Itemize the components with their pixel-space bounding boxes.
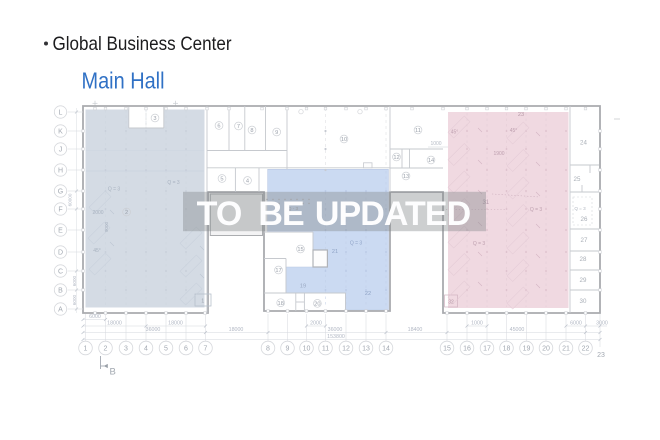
svg-text:60000: 60000 xyxy=(68,193,73,206)
svg-text:1000: 1000 xyxy=(430,141,441,147)
svg-text:21: 21 xyxy=(332,249,338,255)
svg-text:19: 19 xyxy=(300,284,306,290)
svg-text:36000: 36000 xyxy=(328,327,343,333)
svg-text:1: 1 xyxy=(201,299,204,305)
svg-text:28: 28 xyxy=(580,256,587,263)
svg-text:6: 6 xyxy=(184,346,188,353)
svg-text:23: 23 xyxy=(597,352,605,359)
svg-text:3: 3 xyxy=(153,116,156,122)
svg-text:F: F xyxy=(58,207,62,214)
svg-text:10: 10 xyxy=(303,346,311,353)
svg-text:4: 4 xyxy=(144,346,148,353)
svg-text:Q = 3: Q = 3 xyxy=(530,207,543,213)
svg-text:21: 21 xyxy=(562,346,570,353)
svg-text:Q = 3: Q = 3 xyxy=(473,241,486,247)
svg-text:45000: 45000 xyxy=(510,327,525,333)
svg-text:14: 14 xyxy=(428,158,434,164)
svg-text:H: H xyxy=(58,168,63,175)
svg-text:45°: 45° xyxy=(451,130,459,136)
svg-text:22: 22 xyxy=(582,346,590,353)
svg-text:17: 17 xyxy=(275,268,281,274)
svg-text:2: 2 xyxy=(104,346,108,353)
svg-text:6: 6 xyxy=(217,124,220,130)
svg-text:18400: 18400 xyxy=(408,327,423,333)
svg-text:4: 4 xyxy=(246,179,249,185)
svg-text:3: 3 xyxy=(124,346,128,353)
svg-text:K: K xyxy=(58,129,63,136)
svg-text:6000: 6000 xyxy=(72,275,77,286)
svg-text:20: 20 xyxy=(314,302,320,308)
svg-text:30: 30 xyxy=(580,298,587,305)
svg-text:J: J xyxy=(59,147,63,154)
svg-text:1000: 1000 xyxy=(471,321,483,327)
svg-text:14: 14 xyxy=(382,346,390,353)
svg-text:13: 13 xyxy=(403,174,409,180)
svg-text:B: B xyxy=(58,288,63,295)
svg-text:18: 18 xyxy=(278,301,284,307)
svg-text:9000: 9000 xyxy=(104,221,109,232)
svg-text:2: 2 xyxy=(125,210,128,216)
svg-text:Q = 3: Q = 3 xyxy=(574,206,586,211)
svg-text:1900: 1900 xyxy=(493,151,504,157)
svg-text:18000: 18000 xyxy=(168,321,183,327)
svg-text:A: A xyxy=(58,307,63,314)
svg-text:6000: 6000 xyxy=(89,314,101,320)
svg-text:1: 1 xyxy=(84,346,88,353)
svg-text:5: 5 xyxy=(220,177,223,183)
svg-text:B: B xyxy=(110,367,116,378)
svg-text:Main Hall: Main Hall xyxy=(82,68,165,94)
svg-text:22: 22 xyxy=(365,291,371,297)
svg-text:2000: 2000 xyxy=(310,321,322,327)
svg-text:15: 15 xyxy=(297,247,303,253)
svg-text:32: 32 xyxy=(448,300,454,306)
svg-text:Global Business Center: Global Business Center xyxy=(53,33,232,55)
svg-text:TO BE UPDATED: TO BE UPDATED xyxy=(197,195,471,233)
svg-text:11: 11 xyxy=(322,346,329,353)
svg-text:G: G xyxy=(58,189,63,196)
svg-text:Q = 3: Q = 3 xyxy=(350,241,363,247)
svg-text:10: 10 xyxy=(341,137,347,143)
svg-text:5: 5 xyxy=(164,346,168,353)
svg-text:18: 18 xyxy=(503,346,511,353)
svg-text:18000: 18000 xyxy=(107,321,122,327)
svg-text:17: 17 xyxy=(483,346,491,353)
svg-text:26: 26 xyxy=(581,216,588,223)
svg-text:Q = 3: Q = 3 xyxy=(167,180,180,186)
svg-text:D: D xyxy=(58,250,63,257)
svg-text:6000: 6000 xyxy=(72,294,77,305)
svg-text:3000: 3000 xyxy=(596,321,608,327)
svg-text:9: 9 xyxy=(286,346,290,353)
svg-text:C: C xyxy=(58,269,63,276)
svg-text:15: 15 xyxy=(443,346,451,353)
svg-text:25: 25 xyxy=(574,176,581,183)
svg-text:12: 12 xyxy=(393,155,399,161)
svg-text:9: 9 xyxy=(275,130,278,136)
svg-text:8: 8 xyxy=(250,128,253,134)
svg-text:23: 23 xyxy=(518,112,524,118)
svg-text:6000: 6000 xyxy=(570,321,582,327)
svg-text:45°: 45° xyxy=(510,128,518,134)
svg-text:2000: 2000 xyxy=(92,210,103,216)
svg-text:45°: 45° xyxy=(93,248,101,254)
svg-text:12: 12 xyxy=(342,346,350,353)
svg-text:8: 8 xyxy=(266,346,270,353)
svg-text:11: 11 xyxy=(415,128,421,134)
svg-text:L: L xyxy=(59,110,63,117)
svg-text:16: 16 xyxy=(463,346,471,353)
svg-text:24: 24 xyxy=(580,140,587,147)
svg-text:E: E xyxy=(58,228,63,235)
svg-text:7: 7 xyxy=(237,124,240,130)
svg-text:36000: 36000 xyxy=(146,327,161,333)
svg-text:18000: 18000 xyxy=(229,327,244,333)
svg-text:Q = 3: Q = 3 xyxy=(108,187,121,193)
svg-text:19: 19 xyxy=(523,346,531,353)
svg-text:29: 29 xyxy=(580,277,587,284)
svg-text:20: 20 xyxy=(542,346,550,353)
svg-text:13: 13 xyxy=(362,346,370,353)
svg-text:7: 7 xyxy=(204,346,208,353)
svg-text:27: 27 xyxy=(581,237,588,244)
svg-text:153800: 153800 xyxy=(327,334,345,340)
